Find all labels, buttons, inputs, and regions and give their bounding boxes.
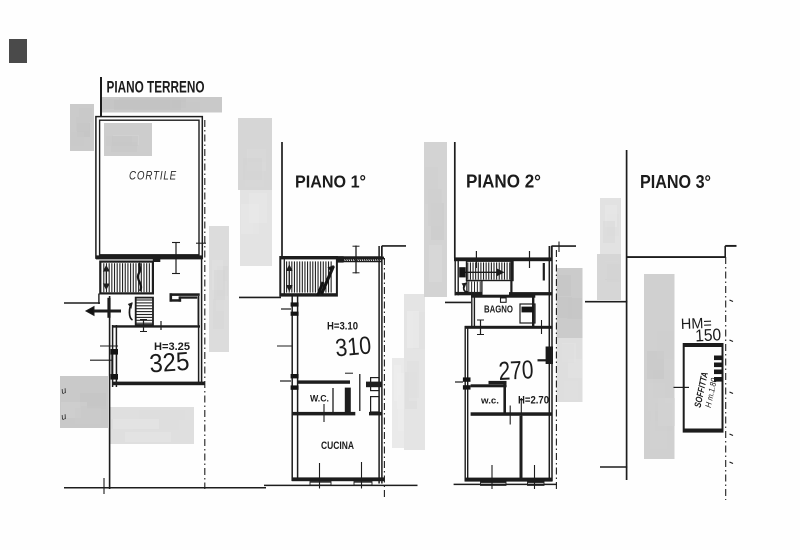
svg-text:BAGNO: BAGNO <box>484 305 513 316</box>
svg-text:PIANO 1°: PIANO 1° <box>295 172 366 192</box>
svg-text:150: 150 <box>695 325 722 345</box>
svg-text:310: 310 <box>334 331 372 362</box>
svg-text:CORTILE: CORTILE <box>129 171 177 183</box>
svg-text:H=3.10: H=3.10 <box>327 321 358 333</box>
svg-text:w.c.: w.c. <box>480 396 499 406</box>
svg-text:325: 325 <box>148 346 190 379</box>
svg-text:H=2.70: H=2.70 <box>518 395 549 407</box>
svg-text:PIANO 3°: PIANO 3° <box>640 172 711 192</box>
svg-text:PIANO 2°: PIANO 2° <box>466 172 541 192</box>
svg-text:W.C.: W.C. <box>310 394 329 404</box>
svg-text:CUCINA: CUCINA <box>321 440 354 452</box>
svg-text:PIANO TERRENO: PIANO TERRENO <box>107 78 205 97</box>
